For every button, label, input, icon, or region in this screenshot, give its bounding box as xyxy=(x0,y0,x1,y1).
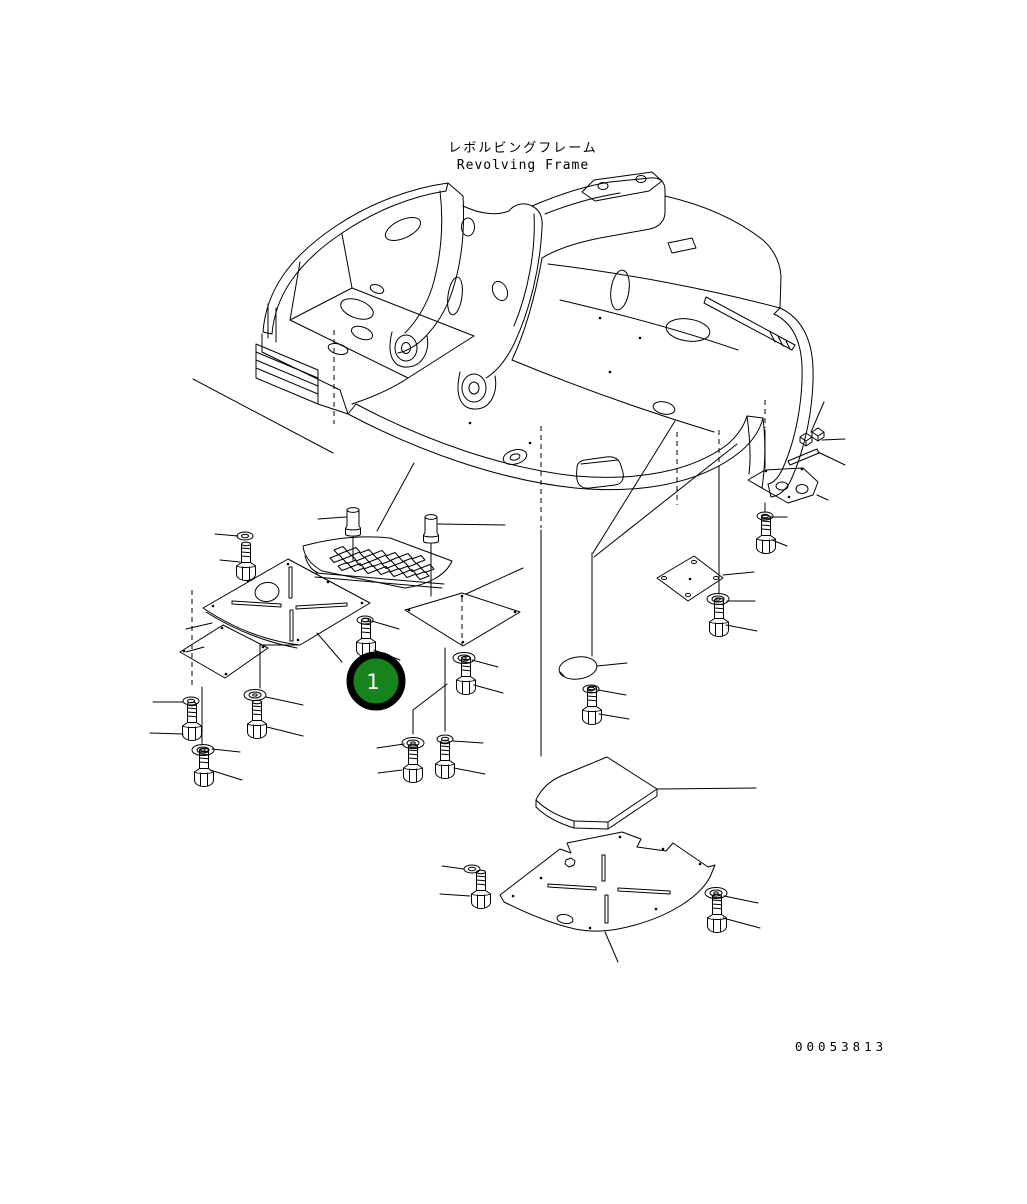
washer xyxy=(707,594,729,605)
hex-bolt xyxy=(708,894,727,932)
assembly-axis-lines xyxy=(202,430,765,756)
washer xyxy=(244,690,266,701)
hex-bolt xyxy=(472,870,491,908)
frame-handle-recess xyxy=(577,457,624,488)
revolving-frame-exploded-drawing: 1 xyxy=(0,0,1027,1204)
hex-bolt xyxy=(237,542,256,580)
step-tread-plate xyxy=(303,537,452,588)
frame-right-deck xyxy=(489,258,795,432)
hex-bolt xyxy=(757,515,776,553)
retainer-rod xyxy=(788,449,819,465)
washer xyxy=(464,865,480,873)
bracket-plate-right xyxy=(748,468,818,503)
washer xyxy=(237,532,253,540)
oval-cover xyxy=(558,654,599,681)
hex-bolt xyxy=(404,744,423,782)
washer xyxy=(437,735,453,743)
callout-balloon-1[interactable]: 1 xyxy=(350,655,402,707)
hex-bolt xyxy=(357,618,376,656)
rubber-mount xyxy=(424,515,439,544)
leader-lines xyxy=(150,379,845,962)
hex-bolt xyxy=(183,702,202,740)
washers xyxy=(183,512,773,899)
drawing-number: 00053813 xyxy=(795,1039,887,1054)
cover-plate-with-cross-slots xyxy=(203,559,370,648)
hex-bolt xyxy=(248,700,267,738)
thick-under-cover xyxy=(536,757,657,829)
frame-rear-arm xyxy=(532,172,781,308)
frame-bottom-rim xyxy=(348,404,765,490)
washer xyxy=(705,888,727,899)
frame-step-stairs xyxy=(256,344,318,404)
callout-label: 1 xyxy=(366,670,379,694)
hex-bolts xyxy=(183,515,776,932)
bottom-cover-plate-with-cross-slots xyxy=(500,832,715,931)
parts-diagram-page: レボルビングフレーム Revolving Frame xyxy=(0,0,1027,1204)
triangular-plate-left xyxy=(180,625,268,678)
revolving-frame-body xyxy=(256,172,813,497)
hidden-center-lines xyxy=(192,330,765,687)
tread-grip-pattern xyxy=(330,547,434,580)
rubber-mount xyxy=(346,508,361,536)
hex-bolt xyxy=(436,740,455,778)
washer xyxy=(402,738,424,749)
